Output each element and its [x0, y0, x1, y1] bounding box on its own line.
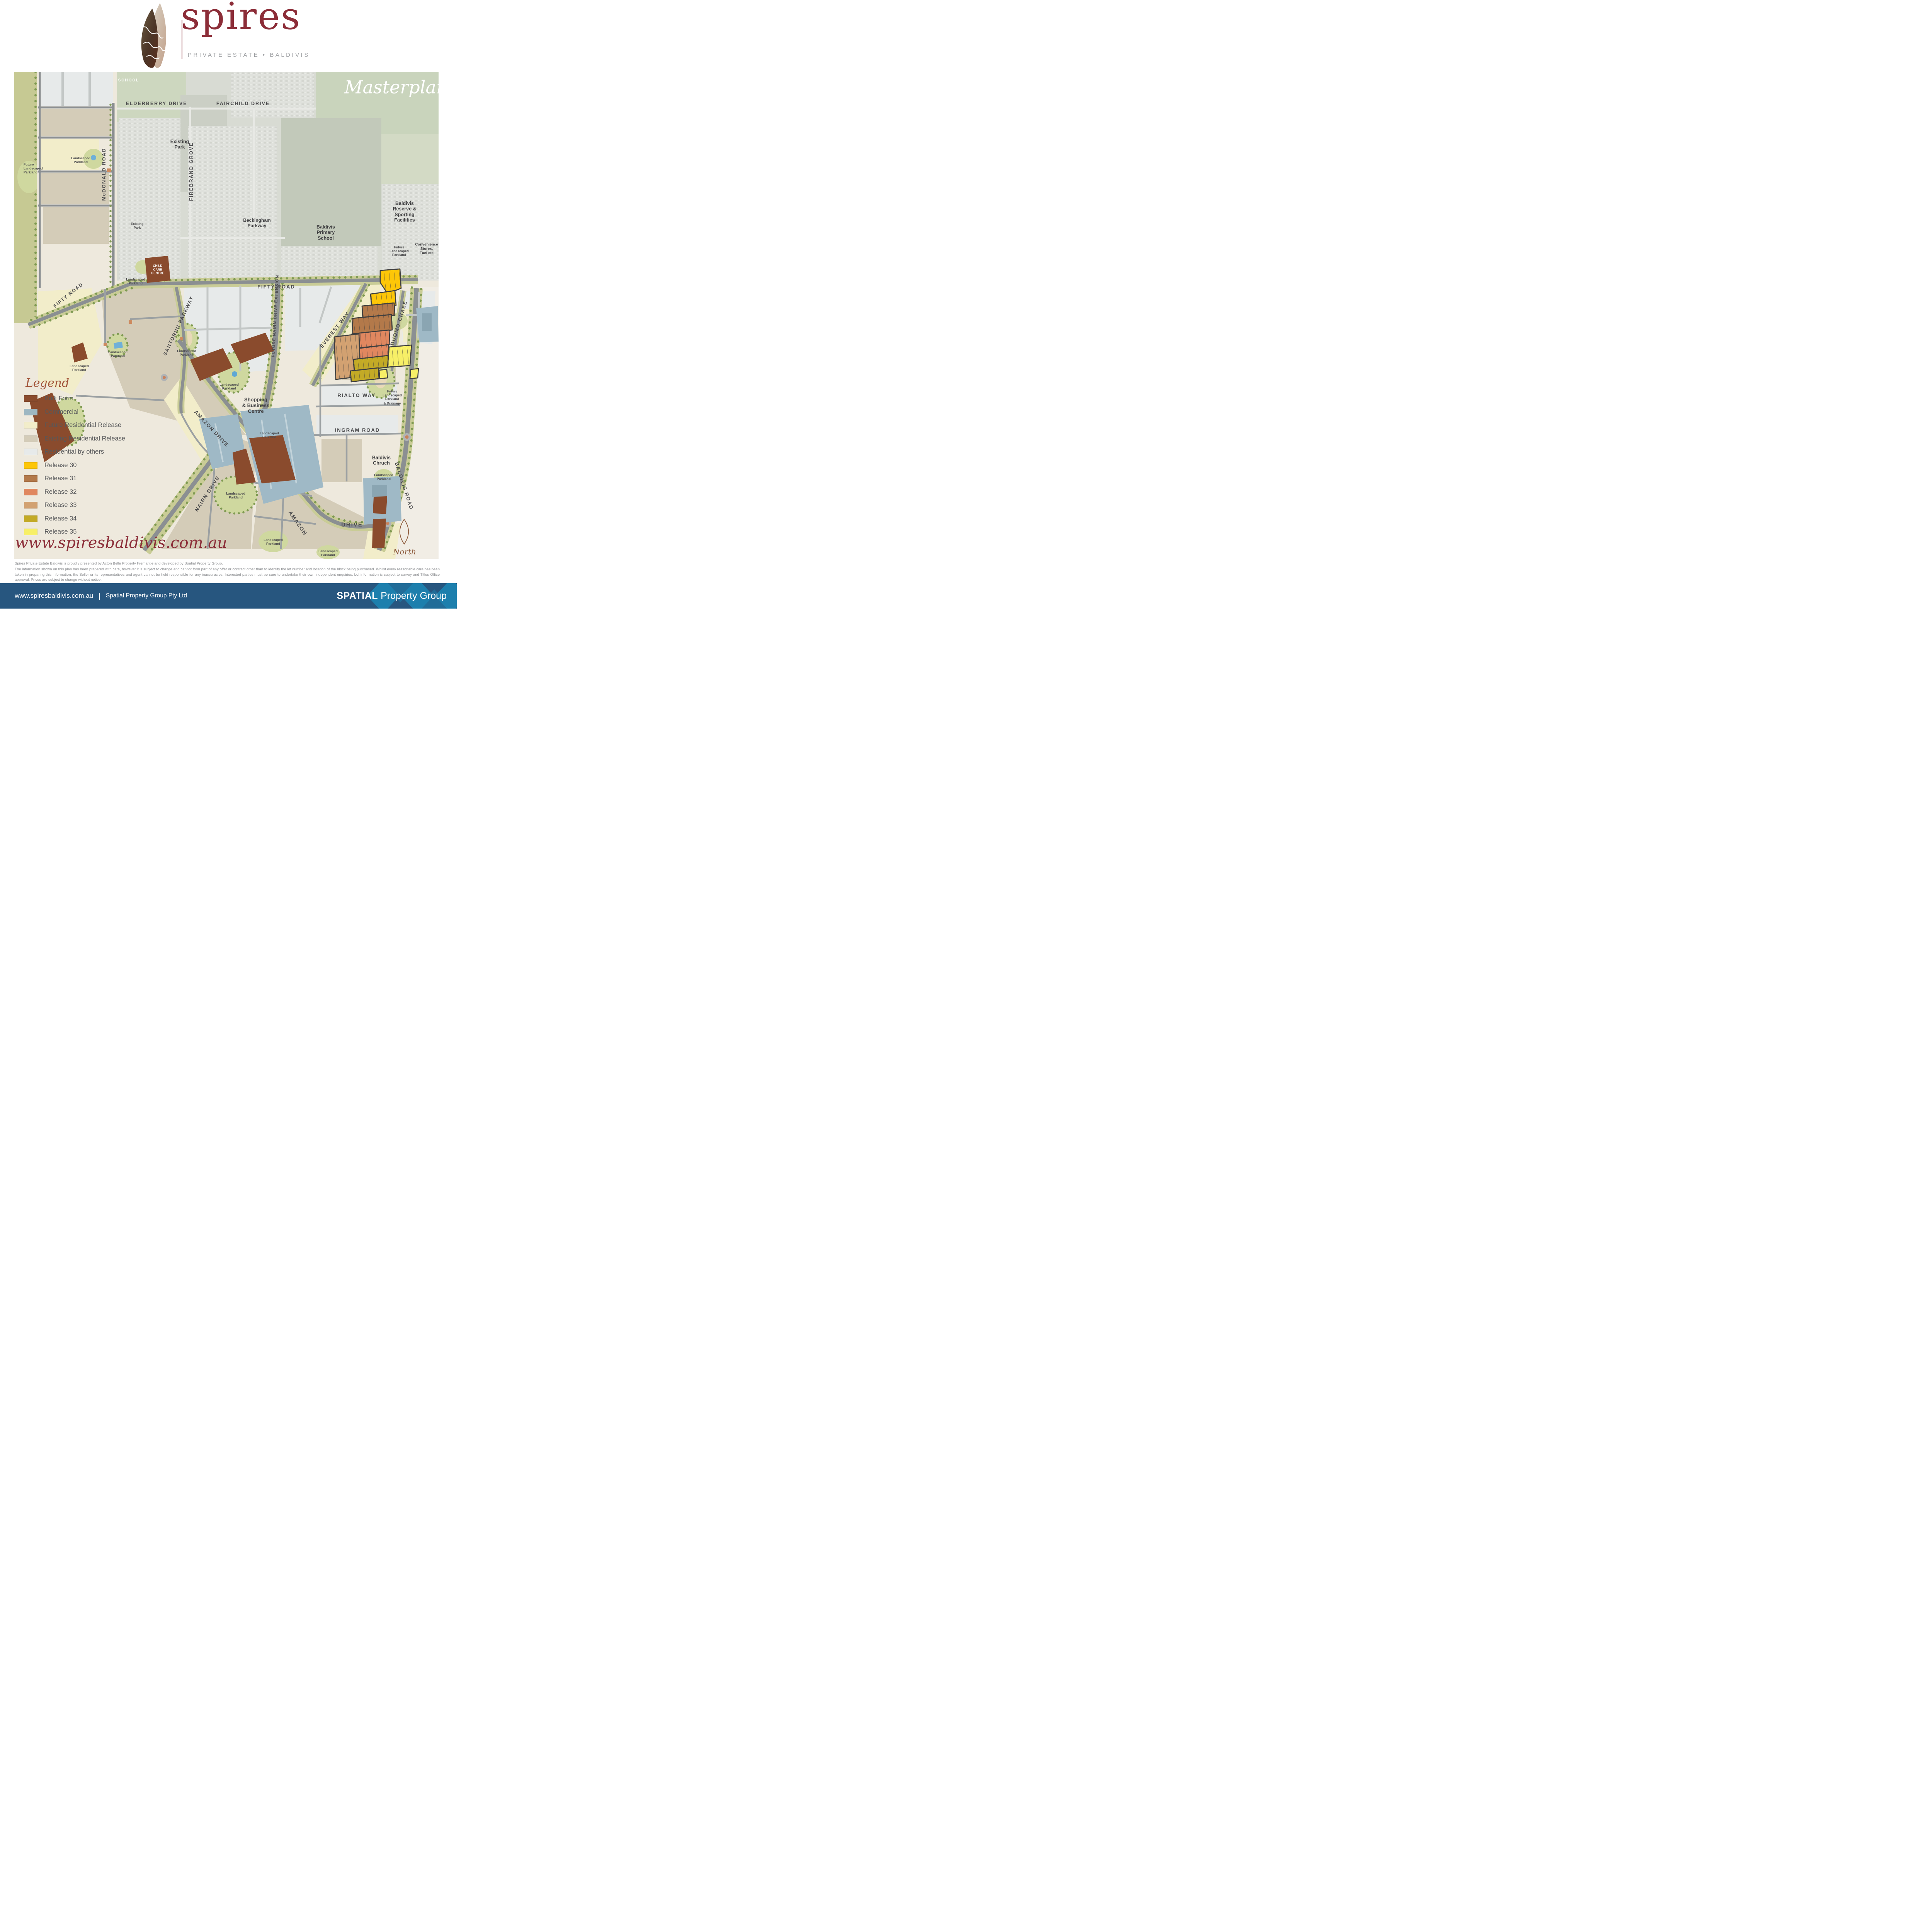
label-elderberry-drive: ELDERBERRY DRIVE	[126, 101, 187, 106]
label-future-landscaped-parkland-ne: Future Landscaped Parkland	[389, 245, 409, 257]
label-baldivis-church: Baldivis Chruch	[372, 455, 391, 466]
header: spires PRIVATE ESTATE • BALDIVIS	[0, 0, 457, 72]
legend-swatch	[24, 489, 37, 495]
legend-label: Commercial	[44, 408, 78, 416]
footer-brand-area: SPATIAL Property Group	[294, 583, 457, 609]
label-future-landscaped-parkland-west: Future Landscaped Parkland	[24, 163, 43, 175]
label-landscaped-parkland-east: Landscaped Parkland	[260, 431, 279, 439]
label-rialto-way: RIALTO WAY	[337, 393, 376, 399]
label-fairchild-drive: FAIRCHILD DRIVE	[216, 101, 270, 106]
masterplan-map: SCHOOL ELDERBERRY DRIVE FAIRCHILD DRIVE …	[14, 72, 439, 559]
disclaimer-body: The information shown on this plan has b…	[15, 567, 440, 582]
label-child-care-centre: CHILD CARE CENTRE	[151, 264, 164, 276]
legend-label: Residential by others	[44, 448, 104, 456]
logo-tagline: PRIVATE ESTATE • BALDIVIS	[188, 52, 310, 58]
legend-row: Future Residential Release	[24, 422, 163, 429]
label-landscaped-parkland-nairn: Landscaped Parkland	[226, 492, 245, 499]
legend-row: Release 34	[24, 515, 163, 522]
label-baldivis-reserve: Baldivis Reserve & Sporting Facilities	[388, 201, 422, 223]
footer-url: www.spiresbaldivis.com.au	[15, 592, 93, 600]
label-landscaped-parkland-childcare: Landscaped Parkland	[126, 277, 145, 285]
label-landscaped-parkland-santorini: Landscaped Parkland	[177, 349, 196, 357]
legend-row: Release 33	[24, 502, 163, 509]
footer-separator: |	[99, 592, 100, 600]
north-label: North	[393, 548, 416, 556]
legend-label: Release 31	[44, 475, 77, 482]
label-baldivis-primary-school: Baldivis Primary School	[316, 224, 335, 241]
legend-label: Release 30	[44, 462, 77, 469]
label-drive: DRIVE	[341, 521, 363, 528]
label-convenience-stores: Convenience Stores, Fuel etc	[415, 243, 438, 256]
label-shopping-centre: Shopping & Business Centre	[242, 397, 270, 415]
brand-spatial: SPATIAL	[337, 590, 378, 602]
legend-row: Release 32	[24, 489, 163, 495]
legend-row: Existing Residential Release	[24, 435, 163, 442]
legend-swatch	[24, 502, 37, 509]
legend-row: Release 31	[24, 475, 163, 482]
label-beckingham-parkway: Beckingham Parkway	[243, 218, 270, 229]
label-landscaped-parkland-west: Landscaped Parkland	[70, 364, 89, 372]
footer-company: Spatial Property Group Pty Ltd	[106, 592, 187, 599]
spires-leaf-logo	[136, 2, 174, 70]
label-landscaped-parkland-pond: Landscaped Parkland	[219, 383, 239, 390]
legend-swatch	[24, 395, 37, 402]
legend-title: Legend	[26, 376, 163, 390]
legend-swatch	[24, 435, 37, 442]
label-landscaped-parkland-south: Landscaped Parkland	[264, 538, 283, 546]
legend-swatch	[24, 422, 37, 429]
legend-label: Release 33	[44, 502, 77, 509]
footer-left: www.spiresbaldivis.com.au | Spatial Prop…	[15, 583, 187, 609]
label-existing-park-small: Existing Park	[131, 222, 143, 230]
legend-swatch	[24, 409, 37, 415]
legend-swatch	[24, 462, 37, 469]
masterplan-poster: spires PRIVATE ESTATE • BALDIVIS	[0, 0, 457, 609]
logo-wordmark: spires	[181, 0, 301, 38]
legend-label: Release 32	[44, 488, 77, 496]
map-title: Masterplan	[344, 77, 439, 98]
label-firebrand-grove: FIREBRAND GROVE	[189, 142, 194, 201]
legend-row: Built Form	[24, 395, 163, 402]
legend-label: Future Residential Release	[44, 422, 121, 429]
legend-label: Built Form	[44, 395, 73, 402]
website-url: www.spiresbaldivis.com.au	[15, 534, 227, 552]
legend-row: Residential by others	[24, 449, 163, 455]
logo-divider	[182, 20, 182, 59]
label-landscaped-parkland-se: Landscaped Parkland	[318, 549, 338, 557]
label-landscaped-parkland-baldivis: Landscaped Parkland	[374, 473, 393, 481]
legend-label: Existing Residential Release	[44, 435, 125, 442]
legend-row: Release 30	[24, 462, 163, 469]
label-existing-park: Existing Park	[170, 139, 189, 150]
footer-bar: www.spiresbaldivis.com.au | Spatial Prop…	[0, 583, 457, 609]
label-mcdonald-road: McDONALD ROAD	[101, 148, 107, 201]
label-school: SCHOOL	[118, 78, 139, 83]
label-landscaped-parkland-strip: Landscaped Parkland	[71, 156, 90, 164]
legend-swatch	[24, 515, 37, 522]
legend-label: Release 34	[44, 515, 77, 522]
disclaimer-line1: Spires Private Estate Baldivis is proudl…	[15, 561, 440, 566]
brand-property-group: Property Group	[381, 590, 447, 602]
legend: Legend Built Form Commercial Future Resi…	[24, 376, 163, 542]
legend-row: Commercial	[24, 409, 163, 415]
legend-swatch	[24, 475, 37, 482]
legend-swatch	[24, 449, 37, 455]
west-olive-band	[14, 72, 41, 323]
footer-brand: SPATIAL Property Group	[337, 583, 447, 609]
label-ingram-road: INGRAM ROAD	[335, 428, 380, 434]
label-drainage-parkland: Future Landscaped Parkland & Drainage	[383, 389, 402, 405]
label-landscaped-parkland-pool: Landscaped Parkland	[108, 350, 128, 358]
disclaimer: Spires Private Estate Baldivis is proudl…	[15, 561, 440, 583]
